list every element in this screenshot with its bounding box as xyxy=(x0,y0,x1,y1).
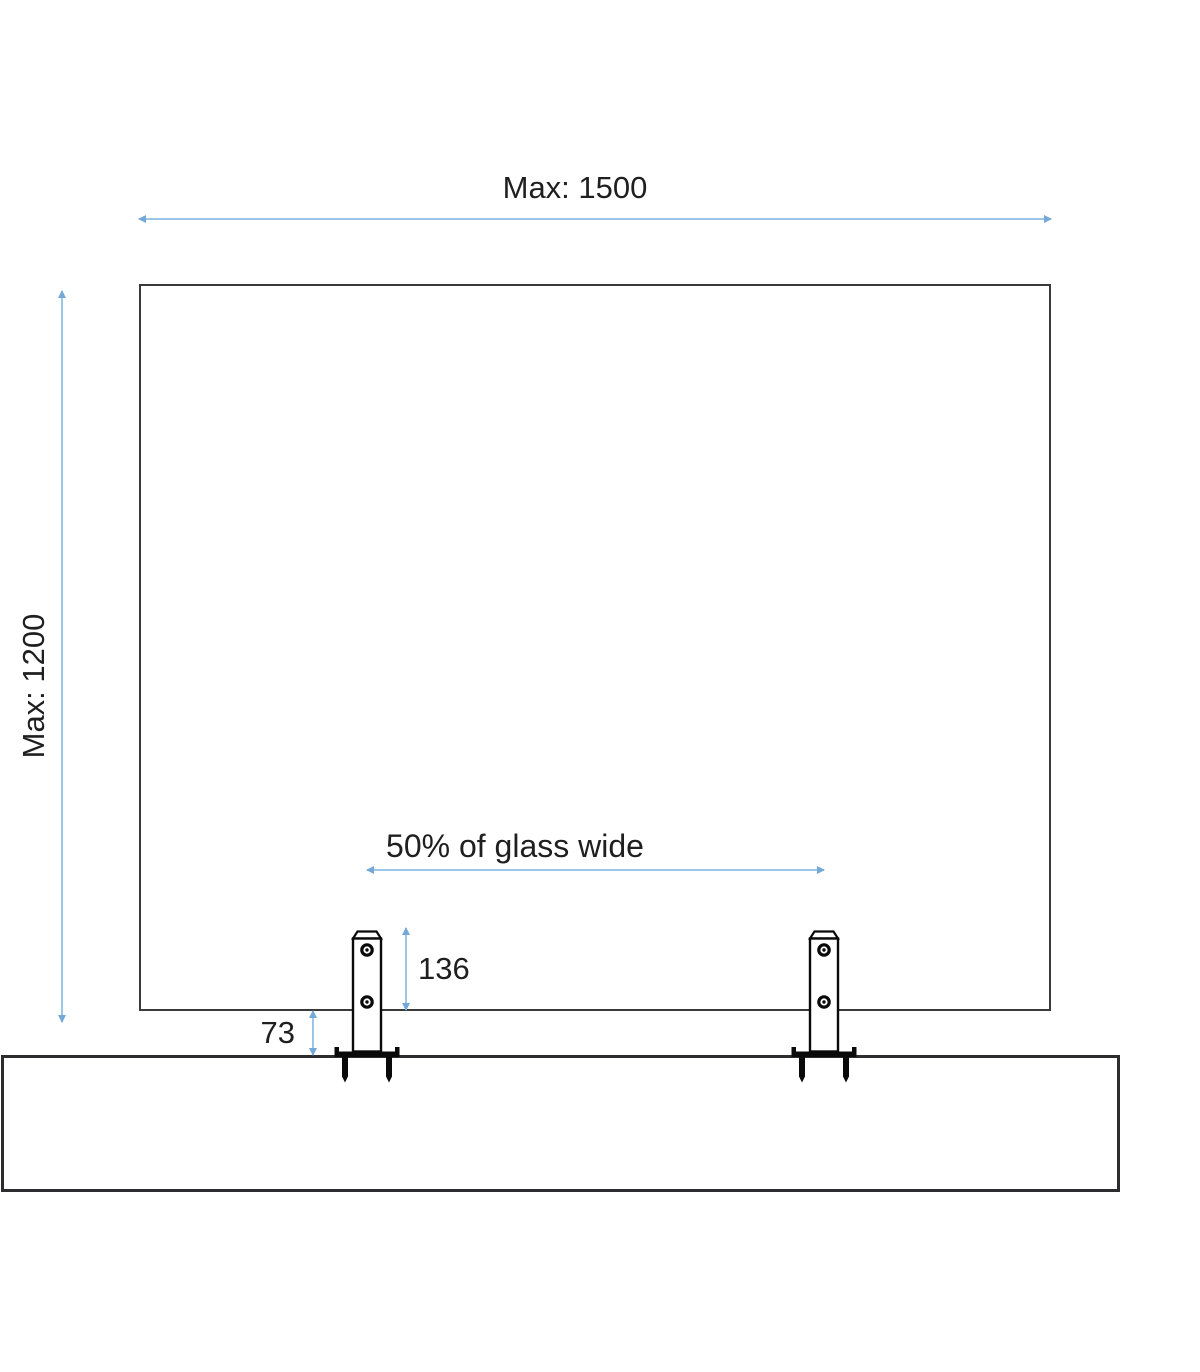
arrow-left-icon xyxy=(366,866,374,874)
right-clamp-bracket xyxy=(790,929,858,1083)
width-dimension-label: Max: 1500 xyxy=(503,170,648,206)
left-clamp-bracket xyxy=(333,929,401,1083)
mounting-screw xyxy=(843,1057,849,1083)
gap-dimension: 73 xyxy=(312,1011,314,1055)
arrow-down-icon xyxy=(58,1015,66,1023)
height-dimension: Max: 1200 xyxy=(61,291,63,1022)
arrow-right-icon xyxy=(1044,215,1052,223)
width-dimension-line xyxy=(139,218,1051,220)
width-dimension: Max: 1500 xyxy=(139,218,1051,220)
arrow-down-icon xyxy=(402,1003,410,1011)
mounting-screw xyxy=(386,1057,392,1083)
arrow-down-icon xyxy=(309,1048,317,1056)
arrow-up-icon xyxy=(402,927,410,935)
technical-drawing-canvas: Max: 1500 Max: 1200 50% of glass wide 13… xyxy=(0,0,1200,1372)
arrow-left-icon xyxy=(138,215,146,223)
bracket-height-label: 136 xyxy=(418,951,470,987)
glass-panel xyxy=(139,284,1051,1011)
screw-head-icon xyxy=(360,995,374,1009)
mounting-screw xyxy=(799,1057,805,1083)
bracket-spacing-label: 50% of glass wide xyxy=(386,828,644,865)
screw-head-icon xyxy=(817,995,831,1009)
gap-dimension-label: 73 xyxy=(261,1015,295,1051)
bracket-height-dimension: 136 xyxy=(405,928,407,1010)
arrow-right-icon xyxy=(817,866,825,874)
screw-head-icon xyxy=(360,943,374,957)
mounting-screw xyxy=(342,1057,348,1083)
height-dimension-line xyxy=(61,291,63,1022)
bracket-height-line xyxy=(405,928,407,1010)
screw-head-icon xyxy=(817,943,831,957)
arrow-up-icon xyxy=(309,1010,317,1018)
arrow-up-icon xyxy=(58,290,66,298)
height-dimension-label: Max: 1200 xyxy=(16,614,52,759)
bracket-spacing-dimension: 50% of glass wide xyxy=(367,869,824,871)
bracket-spacing-line xyxy=(367,869,824,871)
mounting-surface xyxy=(1,1055,1120,1192)
